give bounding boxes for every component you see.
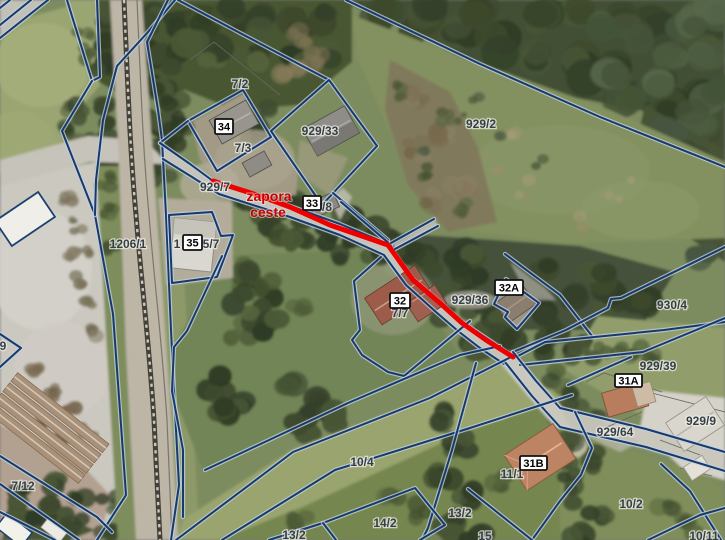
svg-text:5/7: 5/7 (203, 237, 220, 251)
svg-text:13/2: 13/2 (282, 528, 306, 540)
svg-text:zapora: zapora (246, 188, 291, 204)
svg-text:9: 9 (0, 339, 7, 353)
svg-text:ceste: ceste (250, 204, 286, 220)
svg-text:31B: 31B (523, 458, 543, 470)
svg-text:10/4: 10/4 (350, 455, 374, 469)
svg-text:31A: 31A (618, 376, 638, 388)
svg-text:7/3: 7/3 (235, 141, 252, 155)
svg-text:33: 33 (306, 198, 318, 210)
svg-text:930/4: 930/4 (657, 298, 687, 312)
svg-text:929/7: 929/7 (200, 180, 230, 194)
svg-text:929/39: 929/39 (640, 359, 677, 373)
svg-text:14/2: 14/2 (373, 516, 397, 530)
svg-text:7/2: 7/2 (232, 77, 249, 91)
svg-text:/8: /8 (322, 200, 332, 214)
svg-text:32: 32 (394, 296, 406, 308)
svg-text:32A: 32A (499, 283, 519, 295)
svg-text:34: 34 (218, 122, 231, 134)
svg-text:10/11: 10/11 (689, 529, 719, 540)
svg-text:929/33: 929/33 (302, 124, 339, 138)
svg-text:929/9: 929/9 (686, 414, 716, 428)
svg-text:1: 1 (174, 237, 181, 251)
svg-text:929/2: 929/2 (466, 117, 496, 131)
svg-text:1206/1: 1206/1 (110, 237, 147, 251)
svg-text:929/64: 929/64 (597, 425, 634, 439)
svg-text:7/12: 7/12 (11, 479, 35, 493)
svg-text:929/36: 929/36 (452, 293, 489, 307)
svg-text:10/2: 10/2 (619, 497, 643, 511)
svg-text:35: 35 (186, 238, 198, 250)
svg-text:15: 15 (478, 529, 492, 540)
svg-text:13/2: 13/2 (448, 506, 472, 520)
